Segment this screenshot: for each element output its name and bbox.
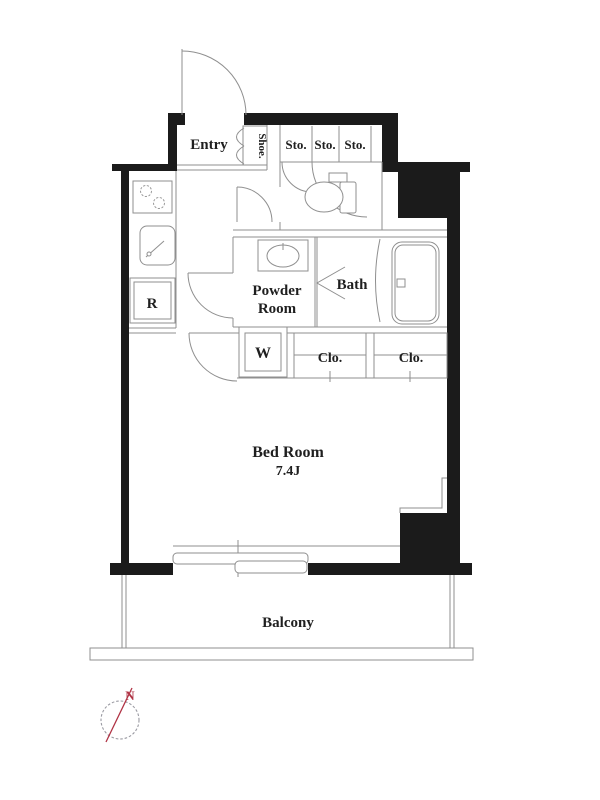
compass-icon: N — [101, 688, 139, 742]
closet-label-2: Clo. — [399, 351, 424, 366]
wall — [398, 162, 470, 172]
powder-room-label: Room — [258, 301, 297, 317]
sliding-window-panel — [235, 561, 307, 573]
wall — [382, 125, 398, 172]
faucet-icon — [147, 252, 151, 256]
washer-closet-row: W Clo. Clo. — [239, 327, 447, 382]
shoe-label: Shoe. — [256, 133, 268, 159]
powder-door-swing — [188, 273, 233, 318]
compass-north-label: N — [125, 688, 135, 703]
wall — [447, 218, 460, 563]
floorplan-canvas: Entry Shoe. Sto. Sto. Sto. — [0, 0, 600, 800]
wall — [121, 171, 129, 563]
bathtub-icon — [392, 242, 439, 324]
storage-door-swing — [282, 162, 312, 192]
bath-door-swing — [376, 239, 381, 322]
wall — [398, 172, 460, 218]
storage-label-3: Sto. — [344, 137, 365, 152]
storage-label-1: Sto. — [285, 137, 306, 152]
wall — [308, 563, 472, 575]
powder-room-label: Powder — [252, 283, 301, 299]
entry-door-swing — [182, 51, 246, 115]
kitchen-area: R — [129, 171, 176, 333]
bath-label: Bath — [337, 277, 369, 293]
bedroom-door-swing — [189, 333, 237, 381]
wall — [112, 164, 177, 171]
kitchen-sink-icon — [140, 226, 175, 265]
balcony-label: Balcony — [262, 615, 314, 631]
wall — [168, 125, 177, 170]
washer-label: W — [255, 345, 271, 362]
storage-label-2: Sto. — [314, 137, 335, 152]
powder-room: Powder Room — [188, 237, 308, 327]
toilet-icon — [305, 182, 343, 212]
balcony-area: Balcony — [90, 575, 473, 660]
kitchen-stove-icon — [133, 181, 172, 213]
bath-room: Bath — [317, 239, 439, 324]
refrigerator-label: R — [147, 296, 158, 312]
wall — [400, 513, 460, 563]
floor-step-line — [400, 478, 447, 513]
entry-area: Entry Shoe. — [177, 49, 268, 170]
entry-label: Entry — [190, 137, 228, 153]
balcony-slab — [90, 648, 473, 660]
wc-door-swing — [237, 187, 272, 222]
bedroom-label: Bed Room — [252, 444, 324, 461]
wall — [244, 113, 398, 125]
wc-area — [237, 173, 356, 222]
compass-ring — [101, 701, 139, 739]
bedroom-size-label: 7.4J — [276, 464, 301, 479]
closet-label-1: Clo. — [318, 351, 343, 366]
wall — [110, 563, 173, 575]
toilet-cistern-shelf — [329, 173, 347, 182]
